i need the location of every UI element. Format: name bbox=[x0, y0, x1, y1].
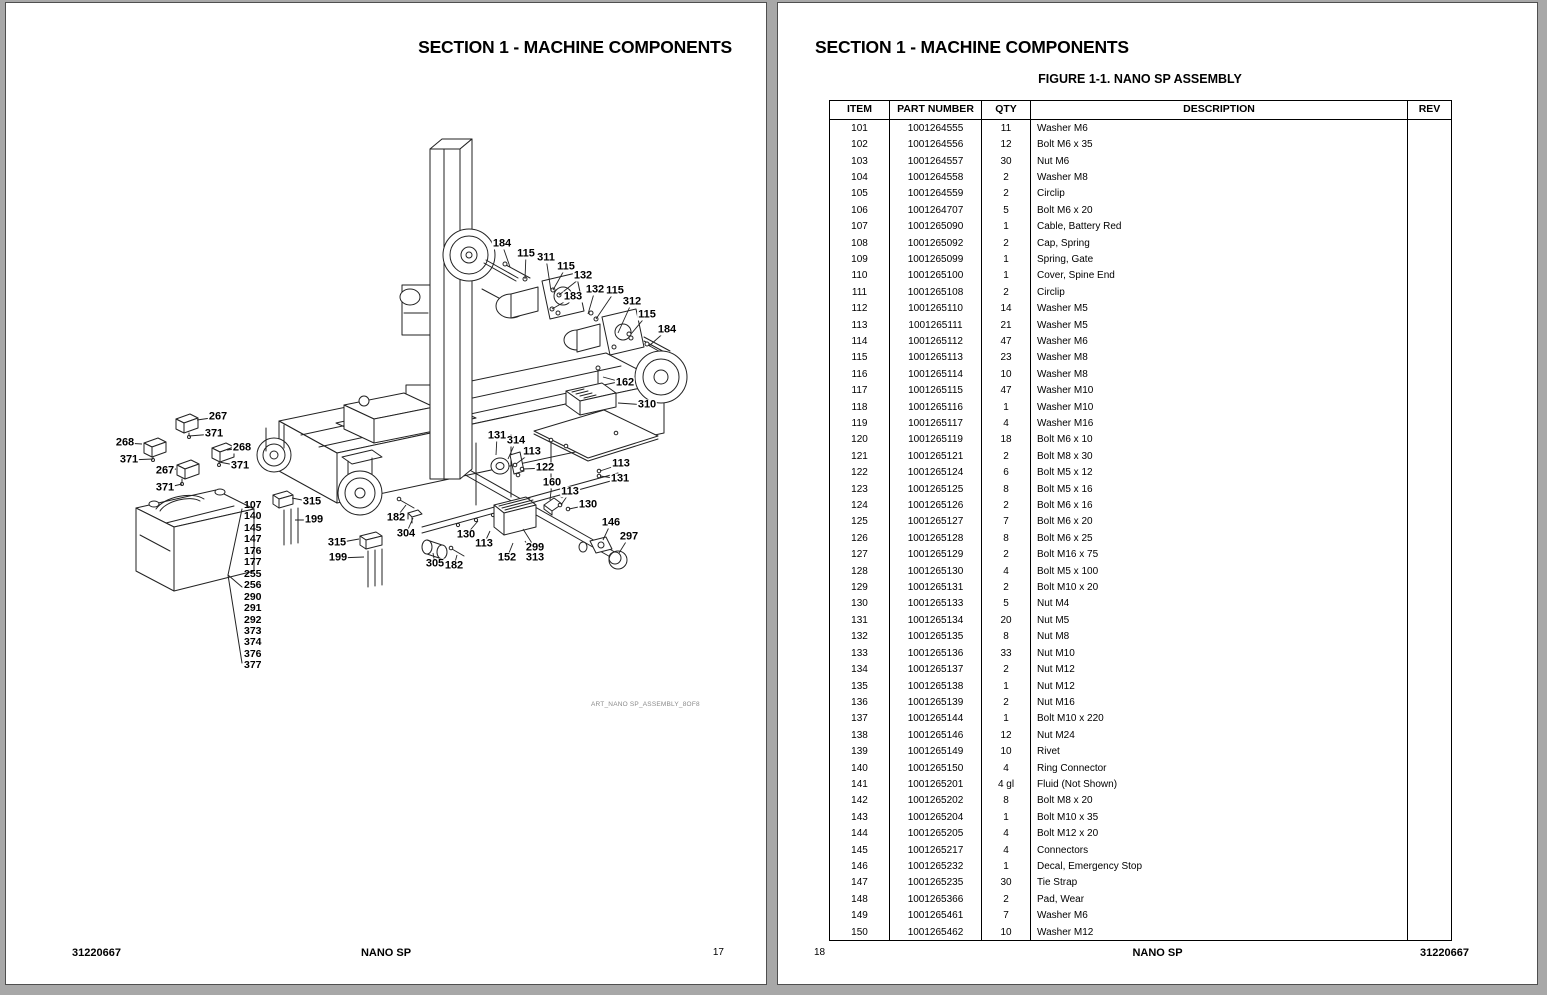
table-row: 103100126455730Nut M6 bbox=[830, 153, 1452, 169]
part-number-cell: 1001265114 bbox=[890, 366, 982, 382]
description-cell: Circlip bbox=[1031, 284, 1408, 300]
qty-cell: 2 bbox=[982, 579, 1031, 595]
part-number-cell: 1001265126 bbox=[890, 497, 982, 513]
item-cell: 129 bbox=[830, 579, 890, 595]
rev-cell bbox=[1408, 776, 1452, 792]
table-row: 150100126546210Washer M12 bbox=[830, 924, 1452, 941]
footer-doc-number: 31220667 bbox=[1420, 947, 1469, 959]
table-row: 12510012651277Bolt M6 x 20 bbox=[830, 514, 1452, 530]
table-row: 12210012651246Bolt M5 x 12 bbox=[830, 465, 1452, 481]
qty-cell: 7 bbox=[982, 908, 1031, 924]
item-cell: 138 bbox=[830, 727, 890, 743]
part-number-cell: 1001264707 bbox=[890, 202, 982, 218]
part-number-cell: 1001265232 bbox=[890, 858, 982, 874]
rev-cell bbox=[1408, 153, 1452, 169]
description-cell: Bolt M5 x 100 bbox=[1031, 563, 1408, 579]
table-row: 10510012645592Circlip bbox=[830, 186, 1452, 202]
table-row: 13710012651441Bolt M10 x 220 bbox=[830, 711, 1452, 727]
rev-cell bbox=[1408, 825, 1452, 841]
description-cell: Ring Connector bbox=[1031, 760, 1408, 776]
part-number-cell: 1001265128 bbox=[890, 530, 982, 546]
description-cell: Connectors bbox=[1031, 842, 1408, 858]
part-number-cell: 1001265146 bbox=[890, 727, 982, 743]
rev-cell bbox=[1408, 218, 1452, 234]
table-row: 14510012652174Connectors bbox=[830, 842, 1452, 858]
rev-cell bbox=[1408, 694, 1452, 710]
rev-cell bbox=[1408, 858, 1452, 874]
description-cell: Washer M6 bbox=[1031, 333, 1408, 349]
qty-cell: 8 bbox=[982, 793, 1031, 809]
page-title: SECTION 1 - MACHINE COMPONENTS bbox=[815, 37, 1129, 58]
part-number-cell: 1001264557 bbox=[890, 153, 982, 169]
part-number-cell: 1001265090 bbox=[890, 218, 982, 234]
qty-cell: 14 bbox=[982, 300, 1031, 316]
part-number-cell: 1001265127 bbox=[890, 514, 982, 530]
qty-cell: 2 bbox=[982, 891, 1031, 907]
item-cell: 113 bbox=[830, 317, 890, 333]
table-row: 12710012651292Bolt M16 x 75 bbox=[830, 547, 1452, 563]
qty-cell: 1 bbox=[982, 858, 1031, 874]
table-row: 13610012651392Nut M16 bbox=[830, 694, 1452, 710]
item-cell: 116 bbox=[830, 366, 890, 382]
part-number-cell: 1001265204 bbox=[890, 809, 982, 825]
qty-cell: 20 bbox=[982, 612, 1031, 628]
rev-cell bbox=[1408, 530, 1452, 546]
description-cell: Washer M8 bbox=[1031, 366, 1408, 382]
rev-cell bbox=[1408, 793, 1452, 809]
rev-cell bbox=[1408, 186, 1452, 202]
rev-cell bbox=[1408, 596, 1452, 612]
item-cell: 127 bbox=[830, 547, 890, 563]
column-header: QTY bbox=[982, 101, 1031, 120]
table-row: 113100126511121Washer M5 bbox=[830, 317, 1452, 333]
part-number-cell: 1001265202 bbox=[890, 793, 982, 809]
qty-cell: 8 bbox=[982, 530, 1031, 546]
rev-cell bbox=[1408, 448, 1452, 464]
item-cell: 141 bbox=[830, 776, 890, 792]
qty-cell: 4 bbox=[982, 563, 1031, 579]
description-cell: Circlip bbox=[1031, 186, 1408, 202]
description-cell: Bolt M6 x 25 bbox=[1031, 530, 1408, 546]
table-row: 11010012651001Cover, Spine End bbox=[830, 268, 1452, 284]
item-cell: 114 bbox=[830, 333, 890, 349]
column-header: REV bbox=[1408, 101, 1452, 120]
table-row: 12110012651212Bolt M8 x 30 bbox=[830, 448, 1452, 464]
description-cell: Washer M8 bbox=[1031, 350, 1408, 366]
table-row: 147100126523530Tie Strap bbox=[830, 875, 1452, 891]
part-number-cell: 1001265099 bbox=[890, 251, 982, 267]
table-row: 12910012651312Bolt M10 x 20 bbox=[830, 579, 1452, 595]
item-cell: 140 bbox=[830, 760, 890, 776]
part-number-cell: 1001265235 bbox=[890, 875, 982, 891]
rev-cell bbox=[1408, 612, 1452, 628]
part-number-cell: 1001265092 bbox=[890, 235, 982, 251]
battery-ref-item: 177 bbox=[244, 557, 262, 568]
description-cell: Washer M5 bbox=[1031, 300, 1408, 316]
rev-cell bbox=[1408, 629, 1452, 645]
rev-cell bbox=[1408, 235, 1452, 251]
table-row: 14110012652014 glFluid (Not Shown) bbox=[830, 776, 1452, 792]
rev-cell bbox=[1408, 711, 1452, 727]
qty-cell: 2 bbox=[982, 661, 1031, 677]
table-row: 14310012652041Bolt M10 x 35 bbox=[830, 809, 1452, 825]
description-cell: Fluid (Not Shown) bbox=[1031, 776, 1408, 792]
part-number-cell: 1001265137 bbox=[890, 661, 982, 677]
part-number-cell: 1001265461 bbox=[890, 908, 982, 924]
rev-cell bbox=[1408, 251, 1452, 267]
table-row: 13210012651358Nut M8 bbox=[830, 629, 1452, 645]
part-number-cell: 1001264559 bbox=[890, 186, 982, 202]
description-cell: Rivet bbox=[1031, 743, 1408, 759]
rev-cell bbox=[1408, 136, 1452, 152]
description-cell: Cover, Spine End bbox=[1031, 268, 1408, 284]
description-cell: Bolt M6 x 20 bbox=[1031, 202, 1408, 218]
item-cell: 143 bbox=[830, 809, 890, 825]
description-cell: Bolt M10 x 20 bbox=[1031, 579, 1408, 595]
table-row: 13510012651381Nut M12 bbox=[830, 678, 1452, 694]
description-cell: Nut M5 bbox=[1031, 612, 1408, 628]
table-row: 11910012651174Washer M16 bbox=[830, 415, 1452, 431]
battery-ref-item: 377 bbox=[244, 660, 262, 671]
exploded-view-diagram bbox=[6, 3, 768, 986]
part-number-cell: 1001265134 bbox=[890, 612, 982, 628]
part-number-cell: 1001265110 bbox=[890, 300, 982, 316]
item-cell: 148 bbox=[830, 891, 890, 907]
part-number-cell: 1001265116 bbox=[890, 399, 982, 415]
rev-cell bbox=[1408, 875, 1452, 891]
item-cell: 131 bbox=[830, 612, 890, 628]
item-cell: 106 bbox=[830, 202, 890, 218]
part-number-cell: 1001265138 bbox=[890, 678, 982, 694]
qty-cell: 2 bbox=[982, 694, 1031, 710]
description-cell: Bolt M6 x 35 bbox=[1031, 136, 1408, 152]
rev-cell bbox=[1408, 202, 1452, 218]
item-cell: 142 bbox=[830, 793, 890, 809]
table-row: 10410012645582Washer M8 bbox=[830, 169, 1452, 185]
description-cell: Washer M10 bbox=[1031, 383, 1408, 399]
item-cell: 105 bbox=[830, 186, 890, 202]
table-row: 12610012651288Bolt M6 x 25 bbox=[830, 530, 1452, 546]
rev-cell bbox=[1408, 645, 1452, 661]
qty-cell: 23 bbox=[982, 350, 1031, 366]
qty-cell: 1 bbox=[982, 678, 1031, 694]
qty-cell: 8 bbox=[982, 629, 1031, 645]
part-number-cell: 1001265111 bbox=[890, 317, 982, 333]
part-number-cell: 1001265129 bbox=[890, 547, 982, 563]
rev-cell bbox=[1408, 908, 1452, 924]
item-cell: 130 bbox=[830, 596, 890, 612]
table-row: 101100126455511Washer M6 bbox=[830, 120, 1452, 137]
header-row: ITEMPART NUMBERQTYDESCRIPTIONREV bbox=[830, 101, 1452, 120]
rev-cell bbox=[1408, 366, 1452, 382]
description-cell: Nut M10 bbox=[1031, 645, 1408, 661]
column-header: DESCRIPTION bbox=[1031, 101, 1408, 120]
description-cell: Bolt M12 x 20 bbox=[1031, 825, 1408, 841]
description-cell: Nut M4 bbox=[1031, 596, 1408, 612]
table-row: 14010012651504Ring Connector bbox=[830, 760, 1452, 776]
description-cell: Washer M5 bbox=[1031, 317, 1408, 333]
description-cell: Bolt M5 x 16 bbox=[1031, 481, 1408, 497]
part-number-cell: 1001265100 bbox=[890, 268, 982, 284]
qty-cell: 2 bbox=[982, 547, 1031, 563]
description-cell: Cable, Battery Red bbox=[1031, 218, 1408, 234]
part-number-cell: 1001265201 bbox=[890, 776, 982, 792]
item-cell: 108 bbox=[830, 235, 890, 251]
item-cell: 103 bbox=[830, 153, 890, 169]
qty-cell: 4 bbox=[982, 415, 1031, 431]
description-cell: Bolt M8 x 30 bbox=[1031, 448, 1408, 464]
qty-cell: 1 bbox=[982, 809, 1031, 825]
qty-cell: 1 bbox=[982, 268, 1031, 284]
rev-cell bbox=[1408, 481, 1452, 497]
item-cell: 150 bbox=[830, 924, 890, 941]
item-cell: 139 bbox=[830, 743, 890, 759]
part-number-cell: 1001264556 bbox=[890, 136, 982, 152]
rev-cell bbox=[1408, 317, 1452, 333]
rev-cell bbox=[1408, 547, 1452, 563]
part-number-cell: 1001265139 bbox=[890, 694, 982, 710]
description-cell: Bolt M10 x 220 bbox=[1031, 711, 1408, 727]
column-header: PART NUMBER bbox=[890, 101, 982, 120]
qty-cell: 8 bbox=[982, 481, 1031, 497]
part-number-cell: 1001265136 bbox=[890, 645, 982, 661]
part-number-cell: 1001265130 bbox=[890, 563, 982, 579]
rev-cell bbox=[1408, 661, 1452, 677]
qty-cell: 1 bbox=[982, 218, 1031, 234]
part-number-cell: 1001265124 bbox=[890, 465, 982, 481]
description-cell: Nut M16 bbox=[1031, 694, 1408, 710]
battery-ref-list: 1071401451471761772552562902912923733743… bbox=[244, 500, 262, 672]
rev-cell bbox=[1408, 514, 1452, 530]
qty-cell: 10 bbox=[982, 366, 1031, 382]
description-cell: Bolt M5 x 12 bbox=[1031, 465, 1408, 481]
description-cell: Nut M8 bbox=[1031, 629, 1408, 645]
table-row: 131100126513420Nut M5 bbox=[830, 612, 1452, 628]
qty-cell: 47 bbox=[982, 383, 1031, 399]
qty-cell: 4 bbox=[982, 825, 1031, 841]
table-row: 10810012650922Cap, Spring bbox=[830, 235, 1452, 251]
description-cell: Nut M12 bbox=[1031, 678, 1408, 694]
item-cell: 115 bbox=[830, 350, 890, 366]
table-row: 114100126511247Washer M6 bbox=[830, 333, 1452, 349]
rev-cell bbox=[1408, 333, 1452, 349]
part-number-cell: 1001265133 bbox=[890, 596, 982, 612]
description-cell: Bolt M6 x 10 bbox=[1031, 432, 1408, 448]
part-number-cell: 1001264555 bbox=[890, 120, 982, 137]
description-cell: Cap, Spring bbox=[1031, 235, 1408, 251]
part-number-cell: 1001265144 bbox=[890, 711, 982, 727]
description-cell: Pad, Wear bbox=[1031, 891, 1408, 907]
table-row: 14610012652321Decal, Emergency Stop bbox=[830, 858, 1452, 874]
qty-cell: 4 bbox=[982, 842, 1031, 858]
qty-cell: 2 bbox=[982, 186, 1031, 202]
item-cell: 120 bbox=[830, 432, 890, 448]
description-cell: Bolt M10 x 35 bbox=[1031, 809, 1408, 825]
qty-cell: 1 bbox=[982, 251, 1031, 267]
qty-cell: 7 bbox=[982, 514, 1031, 530]
item-cell: 104 bbox=[830, 169, 890, 185]
description-cell: Bolt M16 x 75 bbox=[1031, 547, 1408, 563]
battery-ref-item: 291 bbox=[244, 603, 262, 614]
qty-cell: 2 bbox=[982, 169, 1031, 185]
item-cell: 145 bbox=[830, 842, 890, 858]
item-cell: 133 bbox=[830, 645, 890, 661]
rev-cell bbox=[1408, 465, 1452, 481]
part-number-cell: 1001265149 bbox=[890, 743, 982, 759]
item-cell: 121 bbox=[830, 448, 890, 464]
item-cell: 135 bbox=[830, 678, 890, 694]
item-cell: 144 bbox=[830, 825, 890, 841]
part-number-cell: 1001265117 bbox=[890, 415, 982, 431]
item-cell: 109 bbox=[830, 251, 890, 267]
item-cell: 134 bbox=[830, 661, 890, 677]
qty-cell: 2 bbox=[982, 235, 1031, 251]
figure-title: FIGURE 1-1. NANO SP ASSEMBLY bbox=[829, 72, 1451, 86]
qty-cell: 4 bbox=[982, 760, 1031, 776]
description-cell: Nut M24 bbox=[1031, 727, 1408, 743]
qty-cell: 10 bbox=[982, 743, 1031, 759]
table-row: 120100126511918Bolt M6 x 10 bbox=[830, 432, 1452, 448]
item-cell: 122 bbox=[830, 465, 890, 481]
part-number-cell: 1001265115 bbox=[890, 383, 982, 399]
qty-cell: 12 bbox=[982, 727, 1031, 743]
table-row: 13010012651335Nut M4 bbox=[830, 596, 1452, 612]
item-cell: 110 bbox=[830, 268, 890, 284]
item-cell: 146 bbox=[830, 858, 890, 874]
part-number-cell: 1001265125 bbox=[890, 481, 982, 497]
rev-cell bbox=[1408, 563, 1452, 579]
rev-cell bbox=[1408, 891, 1452, 907]
table-row: 14210012652028Bolt M8 x 20 bbox=[830, 793, 1452, 809]
rev-cell bbox=[1408, 383, 1452, 399]
qty-cell: 4 gl bbox=[982, 776, 1031, 792]
rev-cell bbox=[1408, 760, 1452, 776]
parts-table-header: ITEMPART NUMBERQTYDESCRIPTIONREV bbox=[830, 101, 1452, 120]
item-cell: 132 bbox=[830, 629, 890, 645]
item-cell: 101 bbox=[830, 120, 890, 137]
qty-cell: 6 bbox=[982, 465, 1031, 481]
table-row: 112100126511014Washer M5 bbox=[830, 300, 1452, 316]
parts-table: ITEMPART NUMBERQTYDESCRIPTIONREV 1011001… bbox=[829, 100, 1452, 941]
parts-table-body: 101100126455511Washer M6102100126455612B… bbox=[830, 120, 1452, 941]
rev-cell bbox=[1408, 350, 1452, 366]
qty-cell: 2 bbox=[982, 448, 1031, 464]
part-number-cell: 1001265131 bbox=[890, 579, 982, 595]
part-number-cell: 1001265135 bbox=[890, 629, 982, 645]
qty-cell: 1 bbox=[982, 399, 1031, 415]
rev-cell bbox=[1408, 743, 1452, 759]
part-number-cell: 1001265366 bbox=[890, 891, 982, 907]
part-number-cell: 1001265108 bbox=[890, 284, 982, 300]
rev-cell bbox=[1408, 432, 1452, 448]
qty-cell: 2 bbox=[982, 284, 1031, 300]
table-row: 102100126455612Bolt M6 x 35 bbox=[830, 136, 1452, 152]
item-cell: 124 bbox=[830, 497, 890, 513]
table-row: 13410012651372Nut M12 bbox=[830, 661, 1452, 677]
footer-model-name: NANO SP bbox=[6, 947, 766, 959]
qty-cell: 18 bbox=[982, 432, 1031, 448]
item-cell: 125 bbox=[830, 514, 890, 530]
qty-cell: 30 bbox=[982, 875, 1031, 891]
rev-cell bbox=[1408, 497, 1452, 513]
table-row: 138100126514612Nut M24 bbox=[830, 727, 1452, 743]
item-cell: 126 bbox=[830, 530, 890, 546]
table-row: 10710012650901Cable, Battery Red bbox=[830, 218, 1452, 234]
item-cell: 111 bbox=[830, 284, 890, 300]
part-number-cell: 1001265205 bbox=[890, 825, 982, 841]
table-row: 133100126513633Nut M10 bbox=[830, 645, 1452, 661]
rev-cell bbox=[1408, 268, 1452, 284]
table-row: 10610012647075Bolt M6 x 20 bbox=[830, 202, 1452, 218]
item-cell: 107 bbox=[830, 218, 890, 234]
qty-cell: 10 bbox=[982, 924, 1031, 941]
rev-cell bbox=[1408, 579, 1452, 595]
table-row: 10910012650991Spring, Gate bbox=[830, 251, 1452, 267]
item-cell: 118 bbox=[830, 399, 890, 415]
description-cell: Washer M16 bbox=[1031, 415, 1408, 431]
rev-cell bbox=[1408, 284, 1452, 300]
qty-cell: 30 bbox=[982, 153, 1031, 169]
description-cell: Washer M8 bbox=[1031, 169, 1408, 185]
description-cell: Nut M12 bbox=[1031, 661, 1408, 677]
table-row: 14810012653662Pad, Wear bbox=[830, 891, 1452, 907]
description-cell: Washer M12 bbox=[1031, 924, 1408, 941]
qty-cell: 2 bbox=[982, 497, 1031, 513]
column-header: ITEM bbox=[830, 101, 890, 120]
item-cell: 123 bbox=[830, 481, 890, 497]
description-cell: Spring, Gate bbox=[1031, 251, 1408, 267]
description-cell: Bolt M6 x 20 bbox=[1031, 514, 1408, 530]
item-cell: 128 bbox=[830, 563, 890, 579]
description-cell: Bolt M6 x 16 bbox=[1031, 497, 1408, 513]
rev-cell bbox=[1408, 169, 1452, 185]
description-cell: Washer M10 bbox=[1031, 399, 1408, 415]
part-number-cell: 1001265121 bbox=[890, 448, 982, 464]
description-cell: Tie Strap bbox=[1031, 875, 1408, 891]
qty-cell: 11 bbox=[982, 120, 1031, 137]
table-row: 11110012651082Circlip bbox=[830, 284, 1452, 300]
table-row: 12310012651258Bolt M5 x 16 bbox=[830, 481, 1452, 497]
part-number-cell: 1001265462 bbox=[890, 924, 982, 941]
table-row: 117100126511547Washer M10 bbox=[830, 383, 1452, 399]
footer-page-number: 17 bbox=[713, 947, 724, 958]
rev-cell bbox=[1408, 300, 1452, 316]
qty-cell: 21 bbox=[982, 317, 1031, 333]
table-row: 115100126511323Washer M8 bbox=[830, 350, 1452, 366]
description-cell: Decal, Emergency Stop bbox=[1031, 858, 1408, 874]
table-row: 116100126511410Washer M8 bbox=[830, 366, 1452, 382]
item-cell: 136 bbox=[830, 694, 890, 710]
qty-cell: 1 bbox=[982, 711, 1031, 727]
qty-cell: 12 bbox=[982, 136, 1031, 152]
item-cell: 137 bbox=[830, 711, 890, 727]
qty-cell: 33 bbox=[982, 645, 1031, 661]
rev-cell bbox=[1408, 727, 1452, 743]
rev-cell bbox=[1408, 678, 1452, 694]
description-cell: Nut M6 bbox=[1031, 153, 1408, 169]
description-cell: Washer M6 bbox=[1031, 120, 1408, 137]
rev-cell bbox=[1408, 120, 1452, 137]
battery-ref-item: 256 bbox=[244, 580, 262, 591]
table-row: 11810012651161Washer M10 bbox=[830, 399, 1452, 415]
part-number-cell: 1001265119 bbox=[890, 432, 982, 448]
description-cell: Bolt M8 x 20 bbox=[1031, 793, 1408, 809]
table-row: 14910012654617Washer M6 bbox=[830, 908, 1452, 924]
item-cell: 112 bbox=[830, 300, 890, 316]
item-cell: 147 bbox=[830, 875, 890, 891]
item-cell: 117 bbox=[830, 383, 890, 399]
qty-cell: 5 bbox=[982, 202, 1031, 218]
